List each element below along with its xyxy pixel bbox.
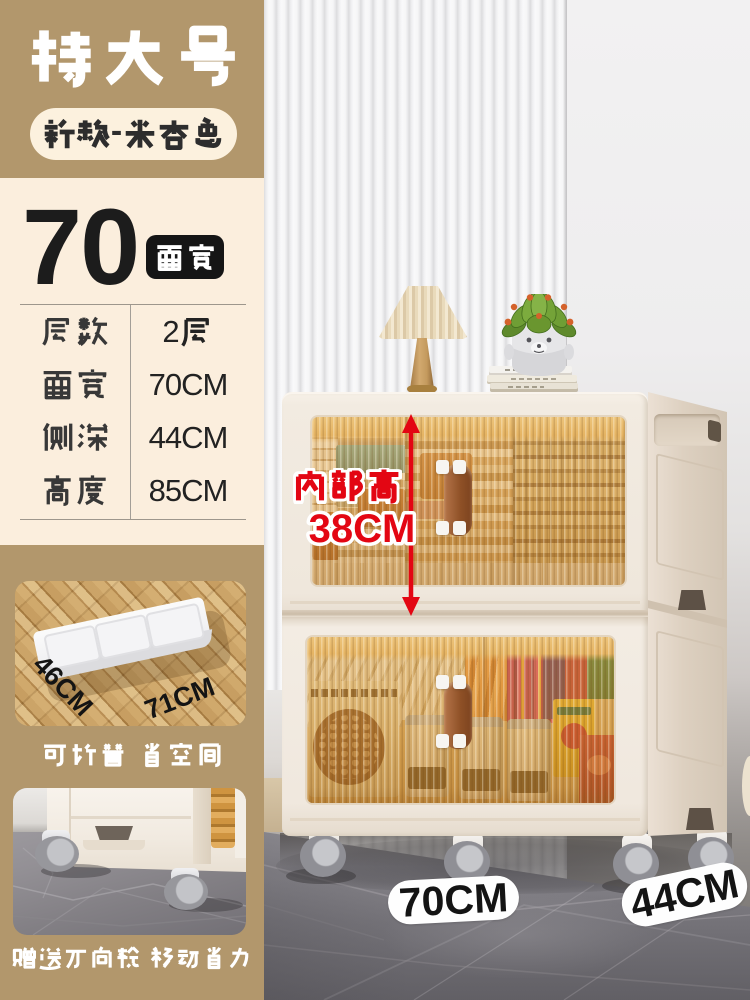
svg-text:38CM: 38CM <box>309 507 416 550</box>
